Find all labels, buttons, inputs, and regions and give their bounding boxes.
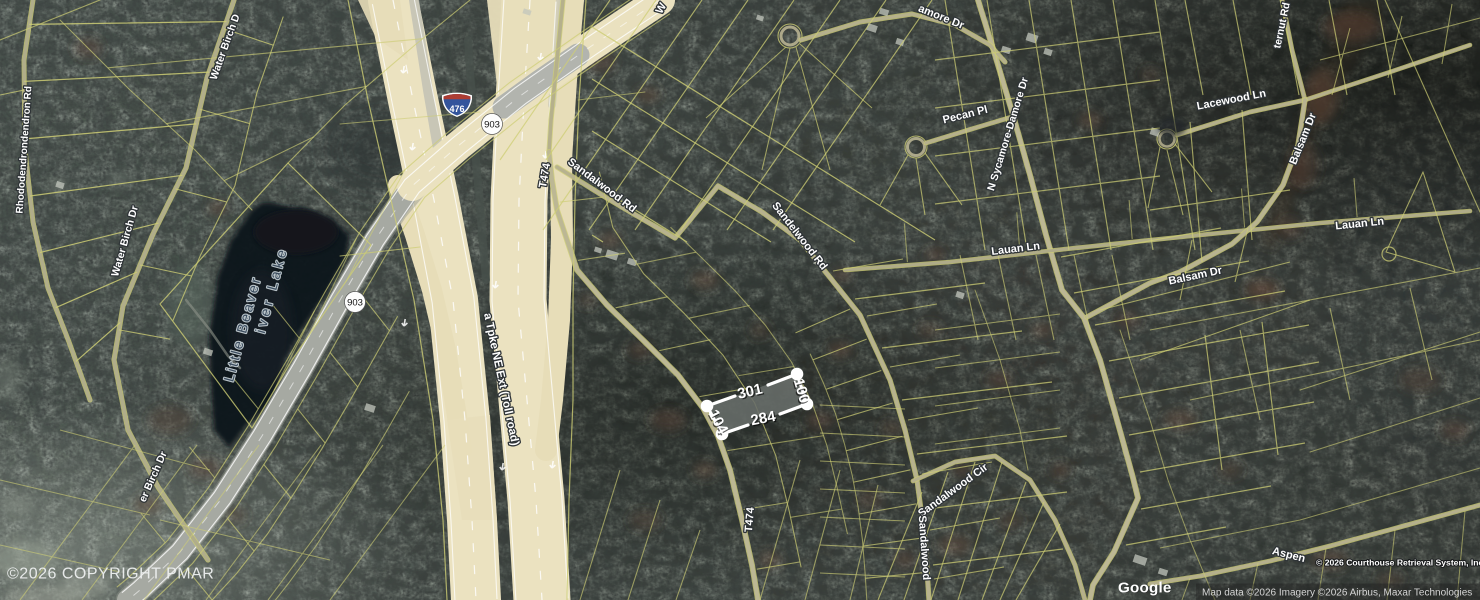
svg-text:903: 903 [484,120,500,131]
svg-text:476: 476 [449,104,464,114]
svg-text:903: 903 [347,298,363,309]
svg-text:© 2026 Courthouse Retrieval Sy: © 2026 Courthouse Retrieval System, Inc. [1316,558,1480,568]
svg-text:T474: T474 [743,506,757,533]
svg-text:Map data ©2026 Imagery ©2026 A: Map data ©2026 Imagery ©2026 Airbus, Max… [1202,588,1472,599]
svg-text:Google: Google [1118,580,1172,597]
svg-text:©2026 COPYRIGHT PMAR: ©2026 COPYRIGHT PMAR [7,566,214,583]
